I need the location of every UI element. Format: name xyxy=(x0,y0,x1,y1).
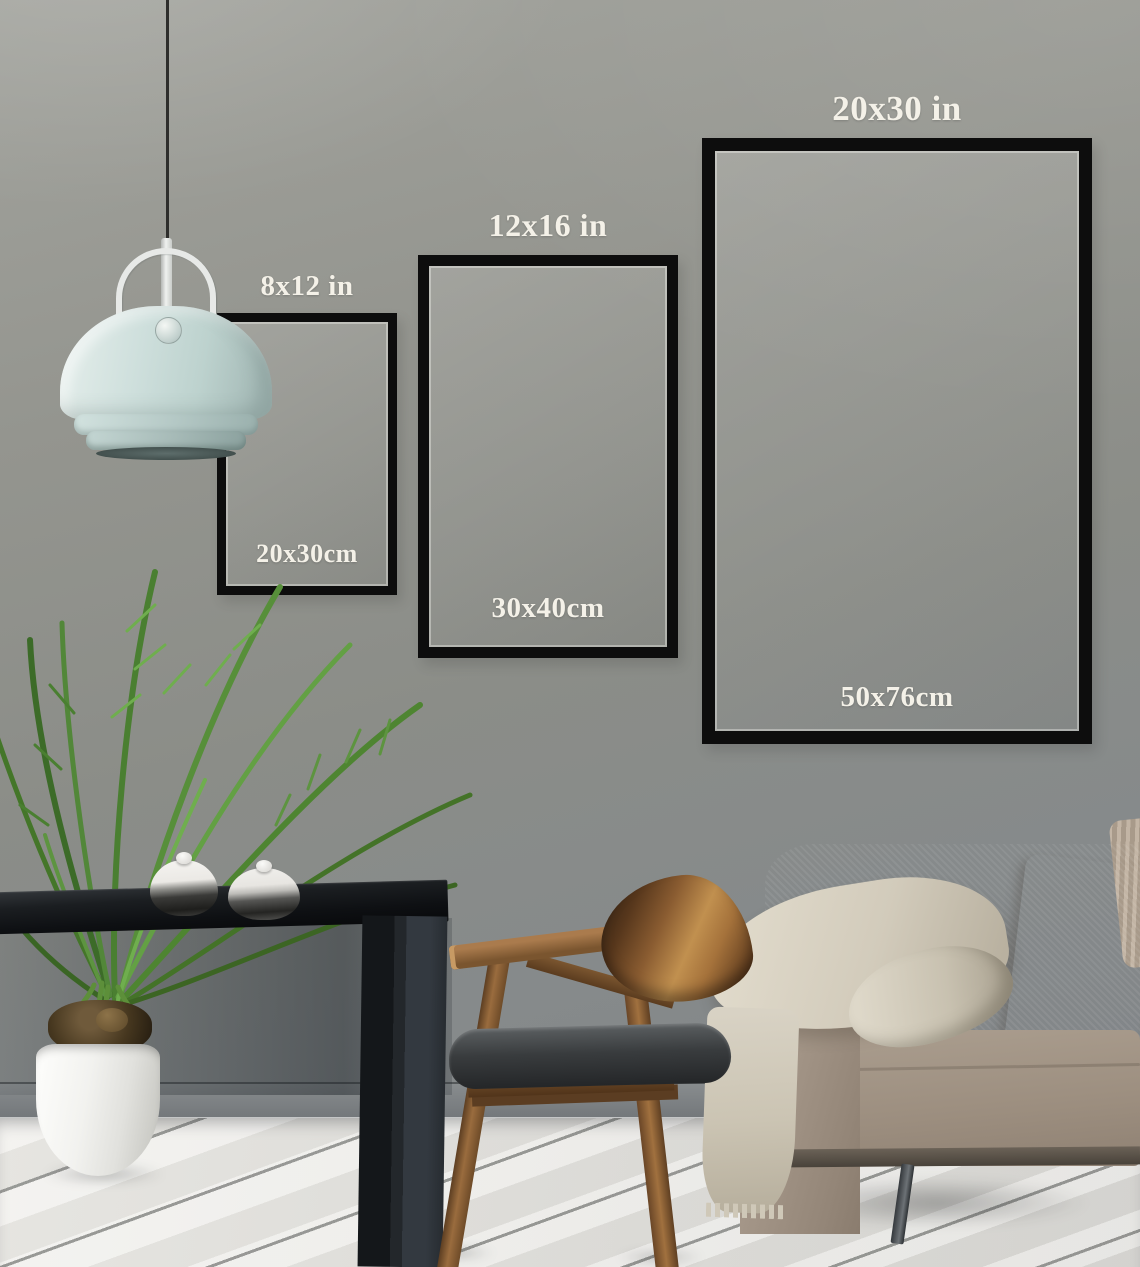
label-inches-medium: 12x16 in xyxy=(418,209,678,241)
label-cm-large: 50x76cm xyxy=(714,683,1080,712)
label-inches-small: 8x12 in xyxy=(217,272,397,301)
teapot-right xyxy=(228,868,300,920)
plant-bulb xyxy=(58,1004,86,1026)
plant-bulb xyxy=(96,1008,128,1032)
lamp-shade-underside xyxy=(96,447,236,460)
throw-blanket-fringe xyxy=(706,1203,786,1220)
teapot-left-lid-knob xyxy=(176,852,192,864)
lamp-pivot-disc xyxy=(155,317,182,344)
label-inches-large: 20x30 in xyxy=(702,91,1092,126)
teapot-left xyxy=(150,860,218,916)
chair-seat-cushion xyxy=(448,1022,731,1089)
sofa-base-rail xyxy=(762,1146,1140,1167)
frame-large-20x30 xyxy=(702,138,1092,744)
lamp-cord xyxy=(166,0,169,252)
table-leg xyxy=(358,915,448,1267)
room-size-guide-photo: 8x12 in 12x16 in 20x30 in 20x30cm 30x40c… xyxy=(0,0,1140,1267)
teapot-right-lid-knob xyxy=(256,860,272,872)
